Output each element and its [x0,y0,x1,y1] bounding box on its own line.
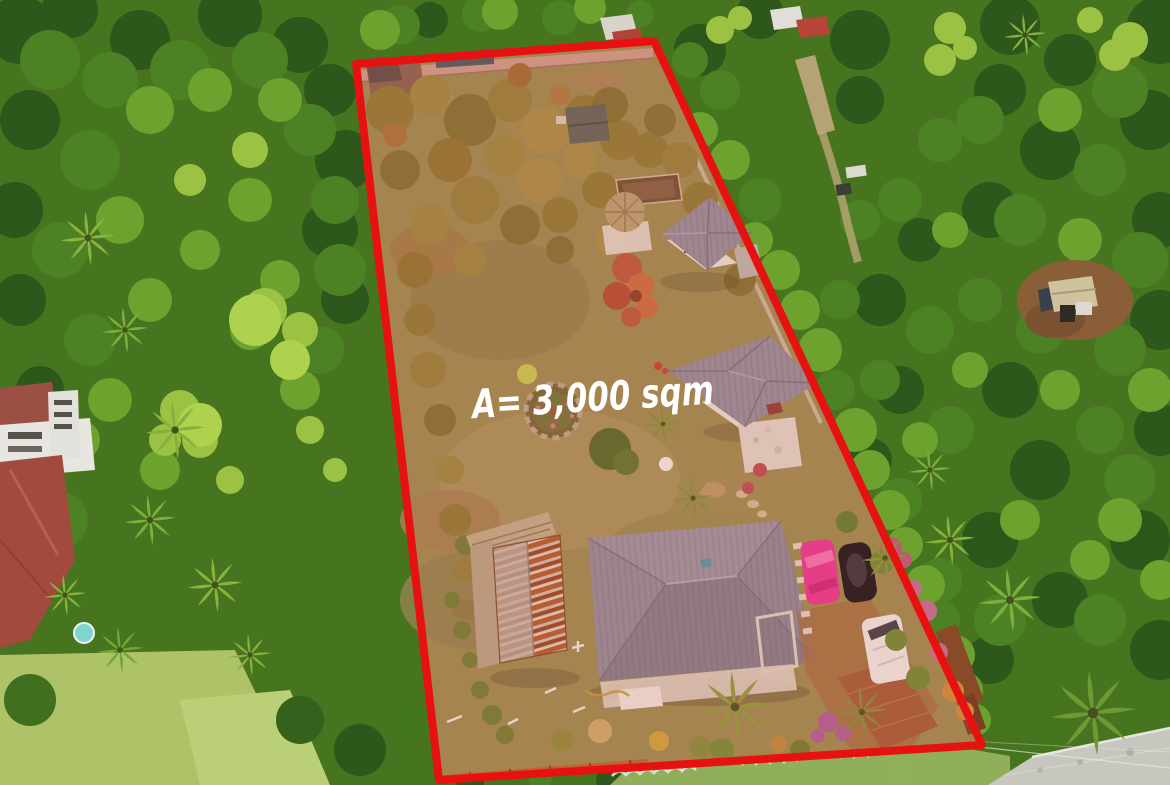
aerial-photo-canvas: A= 3,000 sqm [0,0,1170,785]
neighbor-pool [74,623,94,643]
neighbor-hut-right [1017,260,1133,340]
aerial-photo: A= 3,000 sqm [0,0,1170,785]
